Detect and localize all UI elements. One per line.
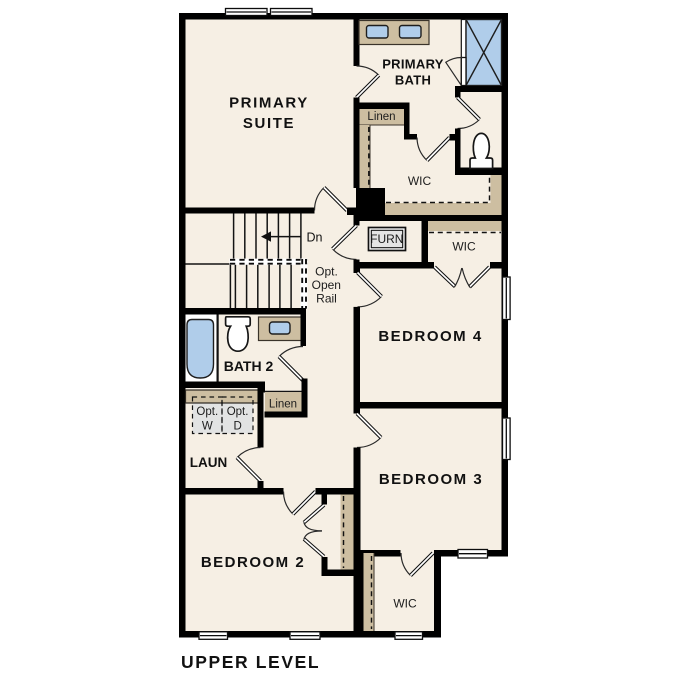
svg-text:Linen: Linen [367, 111, 395, 123]
svg-text:BEDROOM 2: BEDROOM 2 [201, 554, 305, 571]
svg-text:SUITE: SUITE [243, 115, 295, 132]
svg-text:BATH: BATH [395, 73, 431, 88]
svg-text:PRIMARY: PRIMARY [229, 95, 309, 112]
svg-text:LAUN: LAUN [190, 455, 228, 470]
svg-text:Opt.: Opt. [315, 264, 338, 278]
svg-text:PRIMARY: PRIMARY [382, 57, 444, 72]
svg-text:Rail: Rail [316, 292, 337, 306]
svg-text:Opt.: Opt. [196, 406, 218, 418]
svg-text:Opt.: Opt. [227, 406, 249, 418]
svg-text:FURN: FURN [370, 232, 403, 246]
svg-text:Open: Open [312, 278, 341, 292]
svg-text:W: W [202, 421, 213, 433]
svg-text:BEDROOM 3: BEDROOM 3 [379, 471, 483, 488]
svg-text:BATH 2: BATH 2 [224, 358, 274, 374]
svg-text:WIC: WIC [408, 174, 432, 188]
svg-text:WIC: WIC [452, 240, 476, 254]
svg-text:Linen: Linen [269, 399, 297, 411]
svg-text:BEDROOM 4: BEDROOM 4 [378, 328, 482, 345]
svg-text:Dn: Dn [307, 231, 323, 245]
svg-text:WIC: WIC [393, 597, 417, 611]
svg-text:UPPER LEVEL: UPPER LEVEL [181, 652, 320, 672]
svg-text:D: D [233, 421, 241, 433]
